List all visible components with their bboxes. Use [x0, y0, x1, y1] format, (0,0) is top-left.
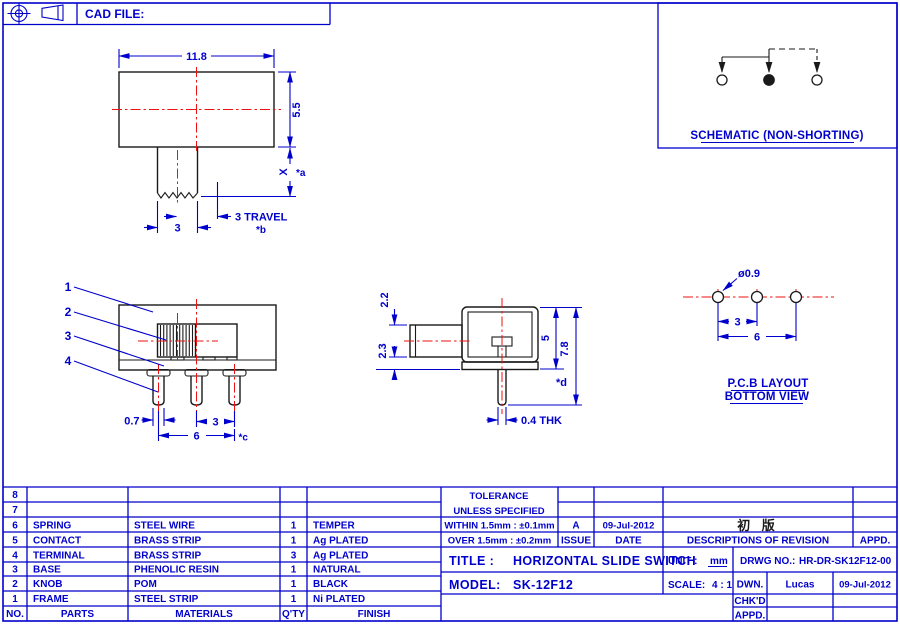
- row-part: CONTACT: [33, 536, 81, 547]
- drawing-canvas: CAD FILE: SCHEMATIC (NON-SHORTING) 11.8 …: [0, 0, 900, 624]
- drwg-no-value: HR-DR-SK12F12-00: [799, 556, 892, 567]
- row-finish: Ag PLATED: [313, 551, 368, 562]
- dim-pin-span: 6: [193, 431, 199, 443]
- row-no: 6: [12, 521, 18, 532]
- col-header-no: NO.: [6, 609, 24, 620]
- drwg-no-label: DRWG NO.:: [740, 556, 795, 567]
- engineering-drawing-sheet: CAD FILE: SCHEMATIC (NON-SHORTING) 11.8 …: [0, 0, 900, 624]
- datum-target-icon: [8, 3, 31, 25]
- callout-4-terminal: 4: [65, 354, 72, 368]
- date-label: DATE: [615, 536, 642, 547]
- row-no: 7: [12, 505, 18, 516]
- issue-value: A: [572, 521, 579, 532]
- row-material: STEEL STRIP: [134, 594, 199, 605]
- dim-travel-note: *b: [256, 225, 266, 236]
- appd-column-label: APPD.: [860, 536, 891, 547]
- row-material: STEEL WIRE: [134, 521, 195, 532]
- terminal-slots: [171, 357, 237, 360]
- dim-pin-pitch: 3: [212, 417, 218, 429]
- terminal-1-contact: [717, 75, 727, 85]
- cad-file-label: CAD FILE:: [85, 7, 144, 21]
- row-part: BASE: [33, 565, 61, 576]
- row-part: TERMINAL: [33, 551, 85, 562]
- col-header-finish: FINISH: [358, 609, 391, 620]
- pcb-layout-view: ø0.9 3 6 P.C.B LAYOUT BOTTOM VIEW: [683, 268, 834, 404]
- dwn-date-value: 09-Jul-2012: [839, 580, 891, 591]
- row-no: 8: [12, 490, 18, 501]
- row-qty: 3: [291, 551, 297, 562]
- unit-value: mm: [710, 556, 728, 567]
- dim-side-bottom-offset: 2.3: [377, 343, 389, 358]
- row-no: 1: [12, 594, 18, 605]
- col-header-materials: MATERIALS: [175, 609, 233, 620]
- row-no: 2: [12, 579, 18, 590]
- row-qty: 1: [291, 521, 297, 532]
- tolerance-line2: UNLESS SPECIFIED: [453, 506, 544, 517]
- dim-pin-span-note: *c: [239, 433, 249, 444]
- row-no: 5: [12, 536, 18, 547]
- row-part: FRAME: [33, 594, 69, 605]
- projection-angle-icon: [42, 5, 63, 21]
- title-label: TITLE :: [449, 554, 494, 568]
- dim-side-body-height: 5: [540, 335, 552, 341]
- row-material: BRASS STRIP: [134, 551, 202, 562]
- tolerance-within: WITHIN 1.5mm : ±0.1mm: [444, 521, 554, 532]
- dim-top-height: 5.5: [291, 102, 303, 117]
- dim-top-x-note: *a: [296, 168, 306, 179]
- row-finish: NATURAL: [313, 565, 361, 576]
- issue-date-value: 09-Jul-2012: [603, 521, 655, 532]
- tolerance-line1: TOLERANCE: [470, 491, 529, 502]
- top-view: 11.8 5.5 X *a 3 TRAVEL *b 3: [112, 49, 306, 236]
- side-view-base: [462, 362, 538, 370]
- side-view-body: [462, 307, 538, 362]
- pcb-caption-line2: BOTTOM VIEW: [725, 391, 809, 403]
- dim-pcb-pitch: 3: [734, 317, 740, 329]
- front-view: 1 2 3 4 0.7 3 6 *c: [65, 280, 276, 444]
- dim-travel: 3 TRAVEL: [235, 212, 288, 224]
- row-part: SPRING: [33, 521, 72, 532]
- model-value: SK-12F12: [513, 578, 573, 592]
- callout-3-base: 3: [65, 329, 72, 343]
- dim-pin-width: 0.7: [124, 416, 139, 428]
- dim-knob-width: 3: [174, 223, 180, 235]
- pcb-caption-line1: P.C.B LAYOUT: [727, 378, 808, 390]
- unit-label: UNIT :: [668, 556, 697, 567]
- col-header-qty: Q'TY: [282, 609, 305, 620]
- col-header-parts: PARTS: [61, 609, 94, 620]
- pcb-hole-2: [752, 292, 763, 303]
- appd-row-label: APPD.: [735, 611, 766, 622]
- dwn-value: Lucas: [786, 580, 815, 591]
- dim-side-total-height: 7.8: [559, 341, 571, 356]
- model-label: MODEL:: [449, 578, 501, 592]
- parts-table: 8 7 6 SPRING STEEL WIRE 1 TEMPER 5 CONTA…: [6, 490, 390, 620]
- row-material: POM: [134, 579, 157, 590]
- tolerance-over: OVER 1.5mm : ±0.2mm: [448, 536, 551, 547]
- issue-label: ISSUE: [561, 536, 591, 547]
- row-no: 3: [12, 565, 18, 576]
- schematic-caption: SCHEMATIC (NON-SHORTING): [690, 130, 863, 142]
- scale-label: SCALE:: [668, 580, 705, 591]
- row-finish: BLACK: [313, 579, 349, 590]
- dim-side-top-offset: 2.2: [379, 292, 391, 307]
- dwn-label: DWN.: [737, 580, 764, 591]
- schematic-view: SCHEMATIC (NON-SHORTING): [658, 3, 897, 148]
- callout-1-frame: 1: [65, 280, 72, 294]
- terminal-common-contact: [764, 75, 774, 85]
- row-part: KNOB: [33, 579, 62, 590]
- row-qty: 1: [291, 536, 297, 547]
- row-qty: 1: [291, 594, 297, 605]
- pcb-hole-3: [791, 292, 802, 303]
- scale-value: 4 : 1: [712, 580, 732, 591]
- row-finish: TEMPER: [313, 521, 355, 532]
- dim-pin-thickness: 0.4 THK: [521, 415, 562, 427]
- row-material: BRASS STRIP: [134, 536, 202, 547]
- row-qty: 1: [291, 579, 297, 590]
- revision-column-label: DESCRIPTIONS OF REVISION: [687, 536, 829, 547]
- side-view: 2.2 2.3 5 7.8 *d 0.4 THK: [376, 292, 582, 427]
- title-block: TOLERANCE UNLESS SPECIFIED WITHIN 1.5mm …: [444, 491, 891, 622]
- row-finish: Ag PLATED: [313, 536, 368, 547]
- row-no: 4: [12, 551, 18, 562]
- dim-top-x: X: [278, 168, 290, 176]
- pcb-hole-1: [713, 292, 724, 303]
- dim-side-note: *d: [556, 377, 567, 389]
- dim-hole-diameter: ø0.9: [738, 268, 760, 280]
- row-finish: Ni PLATED: [313, 594, 365, 605]
- dim-pcb-span: 6: [754, 332, 760, 344]
- chkd-label: CHK'D: [734, 596, 765, 607]
- row-qty: 1: [291, 565, 297, 576]
- terminal-3-contact: [812, 75, 822, 85]
- dim-top-width: 11.8: [186, 51, 207, 63]
- callout-2-knob: 2: [65, 305, 72, 319]
- row-material: PHENOLIC RESIN: [134, 565, 219, 576]
- revision-description-value: 初 版: [737, 518, 779, 533]
